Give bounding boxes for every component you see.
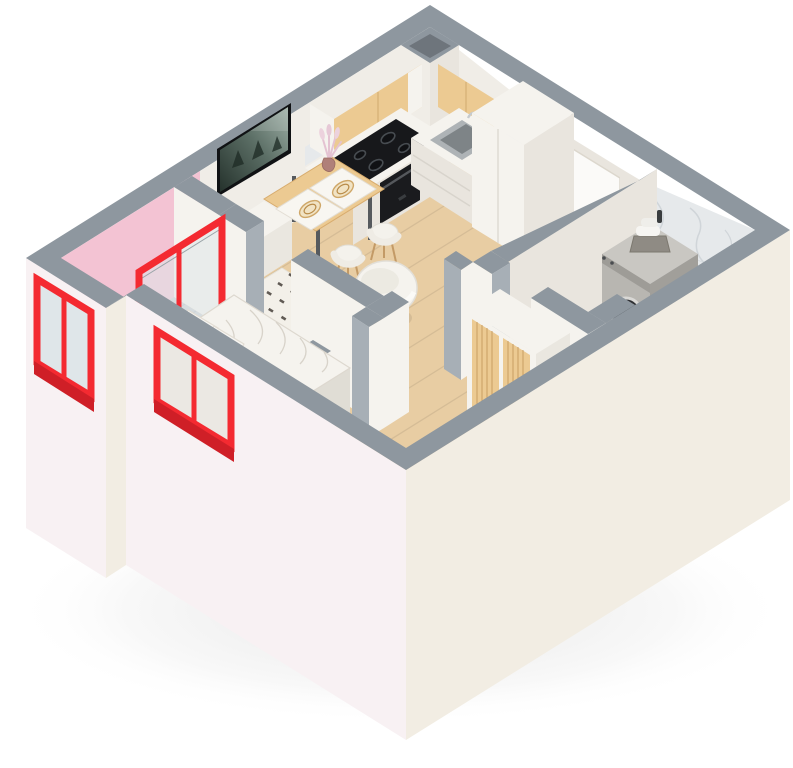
isometric-apartment-scene [0, 0, 793, 768]
doorway-jamb [444, 259, 461, 380]
floorplan-render [0, 0, 793, 768]
